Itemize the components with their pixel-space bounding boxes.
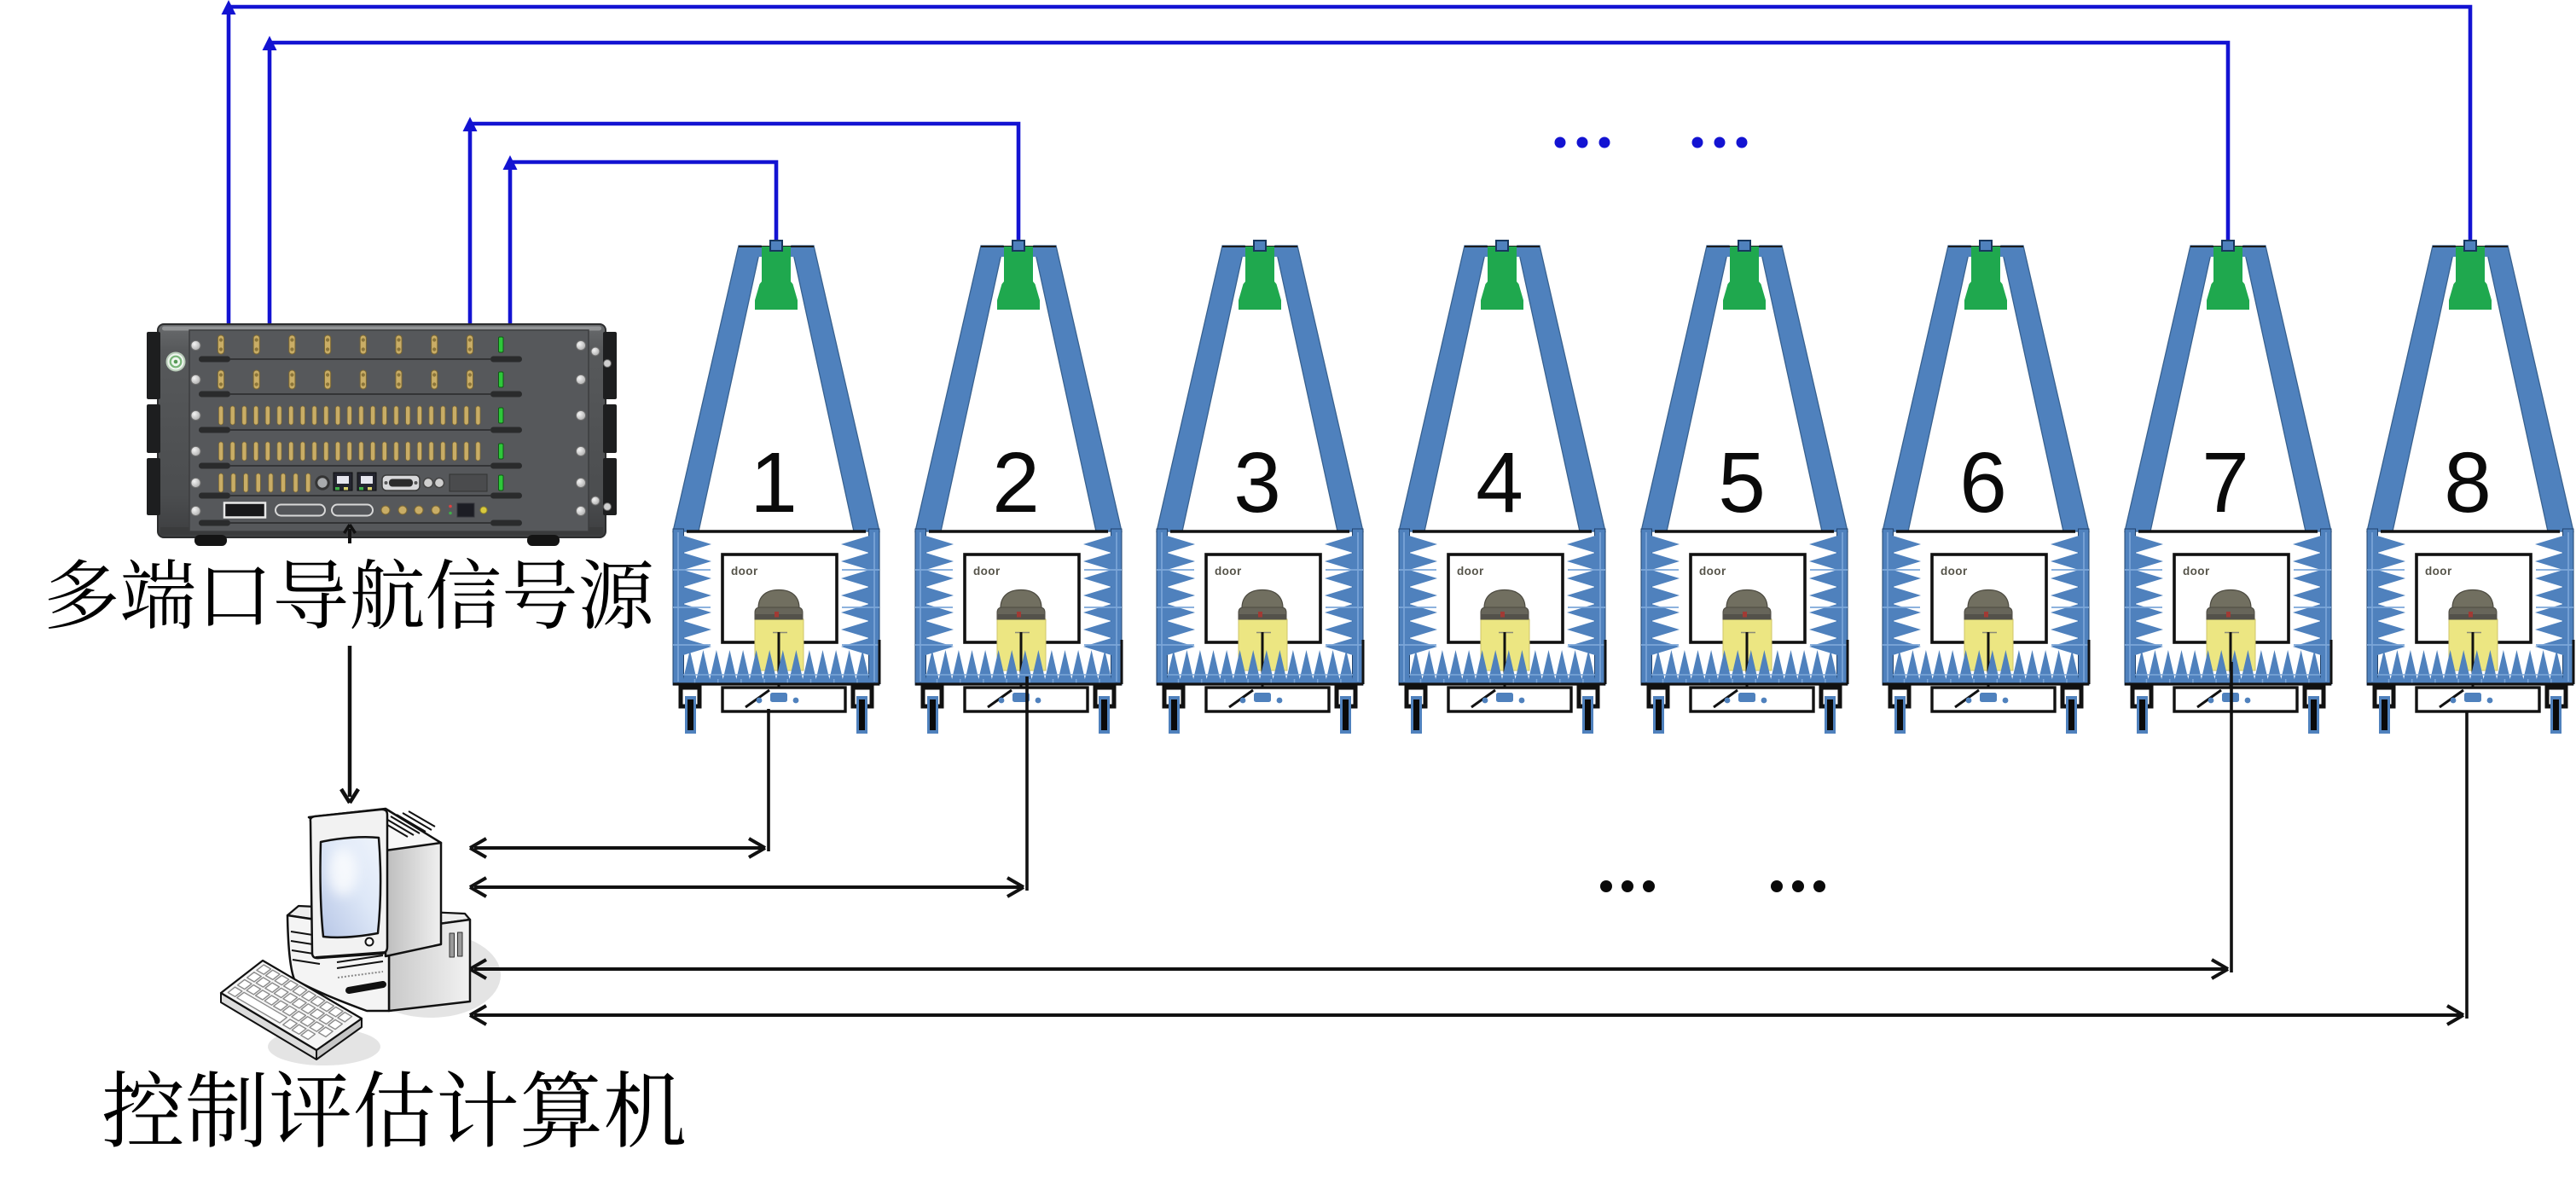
svg-text:7: 7: [2202, 435, 2249, 531]
svg-text:多端口导航信号源: 多端口导航信号源: [44, 535, 654, 645]
svg-text:door: door: [1699, 565, 1726, 578]
svg-text:2: 2: [992, 435, 1040, 531]
svg-text:door: door: [1457, 565, 1484, 578]
svg-text:6: 6: [1959, 435, 2007, 531]
svg-text:5: 5: [1718, 435, 1766, 531]
svg-text:8: 8: [2444, 435, 2492, 531]
svg-text:控制评估计算机: 控制评估计算机: [102, 1045, 687, 1165]
svg-text:4: 4: [1476, 435, 1523, 531]
svg-text:door: door: [1941, 565, 1968, 578]
svg-text:3: 3: [1233, 435, 1281, 531]
svg-text:door: door: [2425, 565, 2452, 578]
svg-text:1: 1: [750, 435, 798, 531]
svg-text:door: door: [973, 565, 1001, 578]
svg-text:door: door: [2183, 565, 2210, 578]
svg-text:door: door: [731, 565, 758, 578]
svg-text:door: door: [1215, 565, 1242, 578]
